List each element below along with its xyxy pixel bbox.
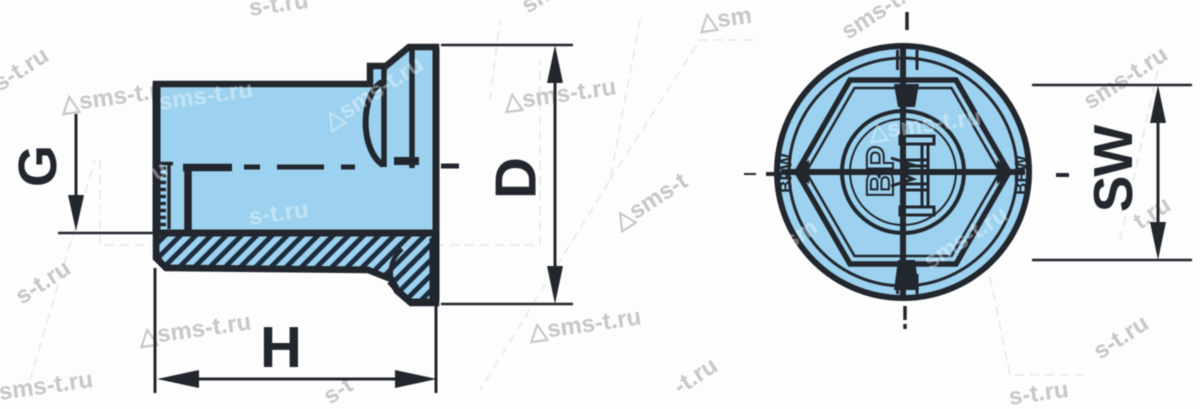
- svg-text:BPW: BPW: [777, 152, 796, 193]
- svg-text:SW: SW: [1082, 125, 1144, 213]
- svg-text:G: G: [8, 145, 68, 187]
- svg-text:BPW: BPW: [1012, 154, 1031, 195]
- svg-text:D: D: [484, 157, 549, 199]
- svg-text:H: H: [260, 315, 302, 380]
